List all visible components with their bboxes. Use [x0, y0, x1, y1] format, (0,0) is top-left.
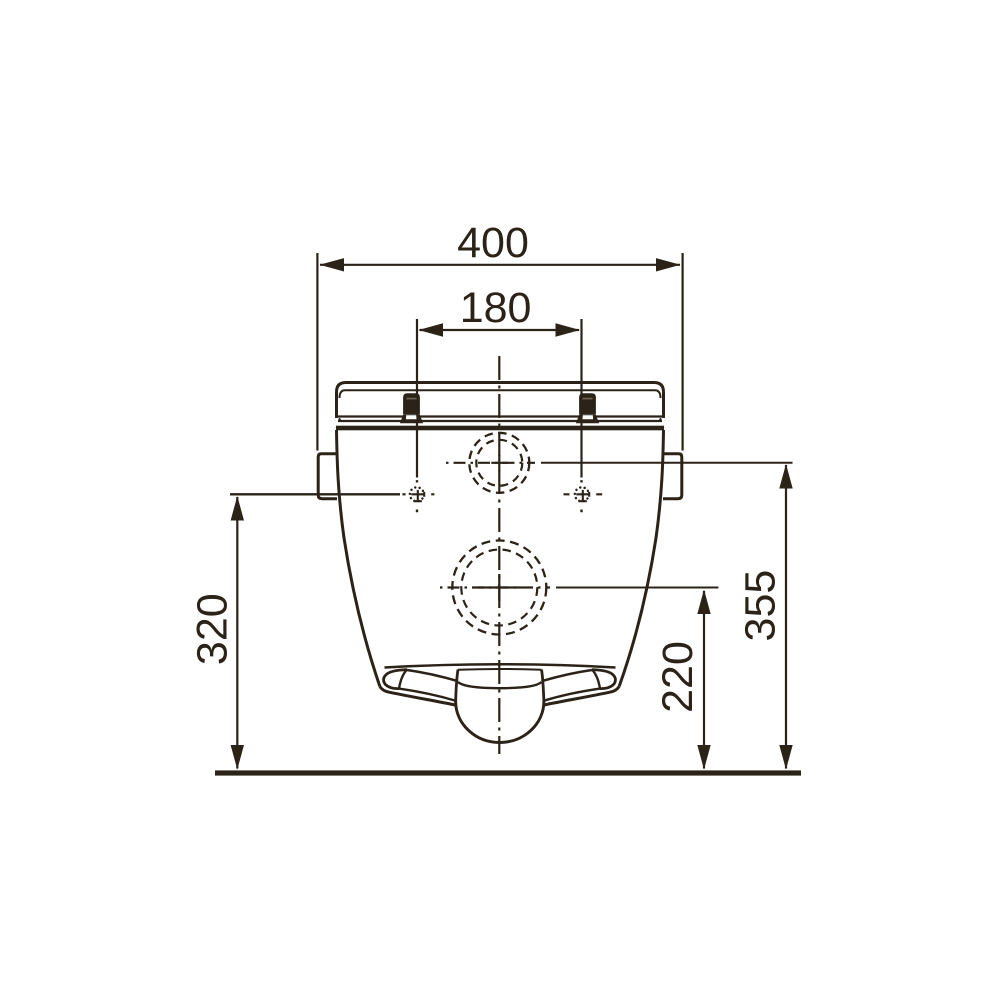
svg-text:320: 320 — [189, 593, 237, 665]
svg-text:220: 220 — [654, 641, 702, 713]
svg-text:400: 400 — [457, 219, 529, 267]
svg-text:180: 180 — [460, 284, 532, 332]
svg-text:355: 355 — [736, 570, 784, 642]
